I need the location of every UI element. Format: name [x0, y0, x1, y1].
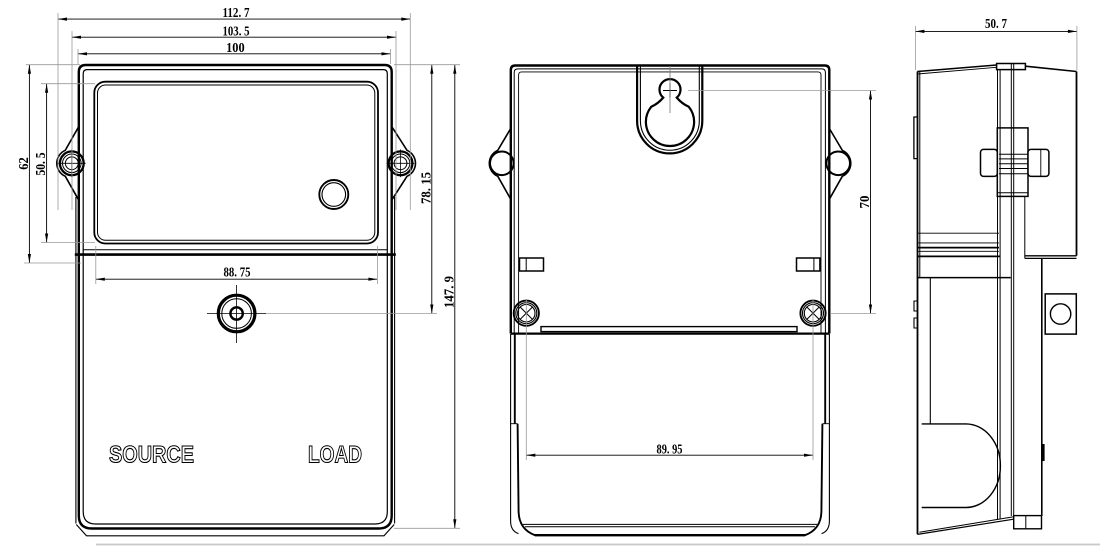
svg-text:62: 62	[17, 157, 32, 170]
svg-text:103. 5: 103. 5	[223, 24, 250, 39]
svg-text:112. 7: 112. 7	[223, 6, 250, 21]
svg-text:147. 9: 147. 9	[442, 276, 457, 308]
svg-text:100: 100	[226, 41, 245, 56]
svg-text:50. 5: 50. 5	[34, 153, 49, 176]
svg-text:70: 70	[858, 196, 873, 209]
svg-text:88. 75: 88. 75	[224, 266, 251, 281]
svg-text:LOAD: LOAD	[308, 442, 362, 469]
svg-text:78. 15: 78. 15	[419, 172, 434, 204]
svg-text:50. 7: 50. 7	[985, 17, 1007, 32]
svg-text:89. 95: 89. 95	[657, 442, 683, 457]
svg-text:SOURCE: SOURCE	[109, 442, 194, 469]
